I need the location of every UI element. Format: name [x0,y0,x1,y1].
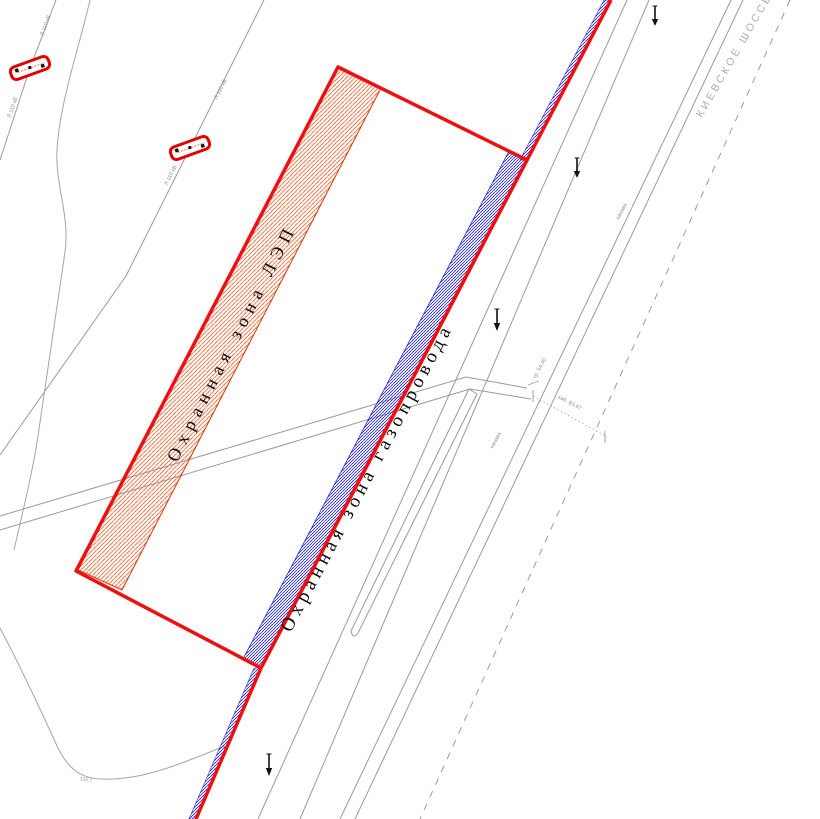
down-arrow-icon [494,309,500,331]
lep-zone-label: Охранная зона ЛЭП [163,220,301,465]
powerline-label: Л 110 кВ [214,78,229,100]
survey-tick [528,381,539,385]
cadastral-plan-svg: Охранная зона ЛЭП Охранная зона газопров… [0,0,820,819]
power-tower-symbol [9,55,51,81]
map-canvas: Охранная зона ЛЭП Охранная зона газопров… [0,0,820,819]
pipe-mark-label: тр. 54,40 [532,357,548,380]
ditch-label: канава [489,431,503,450]
powerline-label: Л 110 кВ [7,96,20,119]
down-arrow-icon [652,6,658,26]
cable-mark-label: каб. 83,47 [557,394,582,411]
elevation-label: 132.7 [80,776,93,784]
down-arrow-icon [266,754,272,776]
gas-zone-label: Охранная зона газопровода [276,319,457,635]
powerline-label: Л 110 кВ [40,14,53,37]
field-path-edge-2 [0,389,531,530]
highway-axis-dashed [420,0,790,819]
contour-line-lower [0,628,225,779]
power-tower-symbol [169,135,211,161]
